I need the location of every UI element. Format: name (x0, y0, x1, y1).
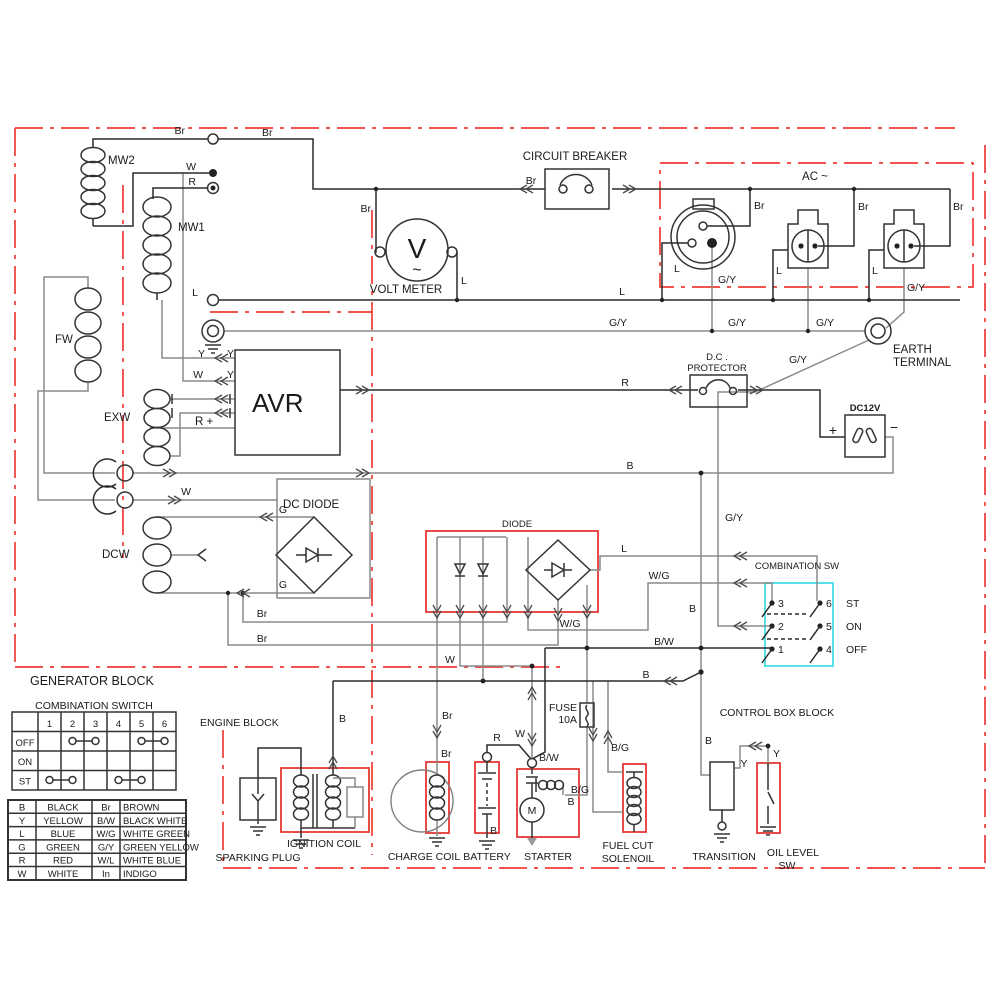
dc-diode (276, 479, 370, 598)
diode-bridge-symbol-triangle (552, 563, 564, 577)
dc-diode-bridge (276, 517, 352, 593)
wire-label: W (193, 369, 203, 381)
wire-fw-ring2 (38, 382, 115, 500)
wire-br-voltmeter (375, 189, 376, 252)
fuel-cut-label-2: SOLENOIL (602, 853, 655, 865)
control-box-block-label: CONTROL BOX BLOCK (720, 707, 835, 719)
col-1: 1 (47, 719, 52, 730)
legend-name: BLACK WHITE (123, 816, 187, 827)
wire-label: B (705, 735, 712, 747)
generator-block-label: GENERATOR BLOCK (30, 674, 155, 688)
legend-code: W (18, 869, 27, 880)
fuse-label-2: 10A (558, 714, 577, 726)
ac-outlet-3 (884, 210, 924, 268)
dcw-label: DCW (102, 549, 130, 561)
motor-m-label: M (528, 805, 537, 817)
wire-label: R (621, 377, 629, 389)
junction-dots (226, 187, 871, 749)
earth-terminal (865, 318, 891, 344)
diode-bridge (526, 540, 590, 600)
wire-br-outlet3 (914, 189, 950, 246)
wire-label: Br (441, 748, 452, 760)
legend-code: Br (101, 803, 111, 814)
combination-switch-table: COMBINATION SWITCH 1 2 3 4 5 6 OFF ON ST (12, 700, 176, 790)
charge-ground-icon (429, 838, 445, 846)
wire-label: Br (858, 201, 869, 213)
starter (520, 759, 564, 847)
engine-block-label: ENGINE BLOCK (200, 717, 279, 729)
generator-terminals (202, 134, 224, 353)
wire-r-battery (487, 745, 531, 759)
wire-label: B (689, 603, 696, 615)
wire-label: B/W (654, 636, 674, 648)
col-2: 2 (70, 719, 75, 730)
legend-name: RED (53, 856, 73, 867)
wire-label: B (626, 460, 633, 472)
wire-label: W (186, 161, 196, 173)
legend-code: R (19, 856, 26, 867)
mw1-label: MW1 (178, 222, 205, 234)
wire-gy-outlet3 (886, 268, 904, 328)
legend-code: G/Y (98, 842, 115, 853)
ignition-coil (293, 774, 363, 848)
dc-protector-label-1: D.C . (706, 352, 728, 363)
sw-st-label: ST (846, 598, 860, 610)
diode-highlight-box (426, 531, 598, 612)
mw1-coil (143, 197, 171, 293)
r-plus-label: R + (195, 416, 214, 428)
legend-name: BROWN (123, 803, 160, 814)
legend-name: YELLOW (43, 816, 83, 827)
wire-label: L (619, 286, 625, 298)
contact-5: 5 (826, 621, 832, 633)
wire-w-diode (460, 537, 532, 666)
dc12v-label: DC12V (850, 403, 881, 414)
wire-label: Br (257, 608, 268, 620)
legend-name: GREEN YELLOW (123, 842, 199, 853)
wire-label: G/Y (725, 512, 743, 524)
wire-label: R (188, 176, 196, 188)
dcw-coil (143, 517, 171, 593)
wire-y-transition (734, 746, 768, 768)
col-4: 4 (116, 719, 121, 730)
wire-label: R (493, 732, 501, 744)
dc12v-plus: + (829, 422, 837, 438)
legend-code: B/W (97, 816, 115, 827)
legend-code: W/L (98, 856, 115, 867)
wire-label: G (279, 504, 287, 516)
wire-label: G/Y (609, 317, 627, 329)
oil-level-switch (760, 763, 776, 835)
wire-label: Y (227, 369, 234, 381)
sw-on-label: ON (846, 621, 862, 633)
oil-level-label-1: OIL LEVEL (767, 847, 819, 859)
wire-label: G/Y (718, 274, 736, 286)
battery-label: BATTERY (463, 851, 510, 863)
switch-blades (762, 603, 820, 663)
ignition-coil-label: IGNITION COIL (287, 838, 361, 850)
contact-4: 4 (826, 644, 832, 656)
wire-br-to-breaker (218, 139, 545, 189)
combination-sw-highlight-box (765, 583, 833, 666)
row-st: ST (19, 777, 31, 788)
wire-label: W (515, 728, 525, 740)
frame-ground-icon (205, 345, 221, 353)
volt-meter-wave: ~ (412, 262, 421, 279)
circuit-breaker-label: CIRCUIT BREAKER (523, 151, 628, 163)
wire-label: L (621, 543, 627, 555)
dc-protector-label-2: PROTECTOR (687, 363, 747, 374)
dc-diode-symbol-triangle (306, 548, 318, 562)
wire-label: G/Y (789, 354, 807, 366)
legend-code: Y (19, 816, 26, 827)
wire-label: L (674, 263, 680, 275)
mw2-coil (81, 148, 105, 219)
wire-label: L (776, 265, 782, 277)
wire-b-transition (701, 473, 710, 775)
wire-label: Y (227, 348, 234, 360)
br-terminal (208, 134, 218, 144)
wire-label: G/Y (728, 317, 746, 329)
w-terminal (209, 169, 217, 177)
wire-br-outlet2 (818, 189, 854, 246)
ignition-condenser (347, 787, 363, 817)
wire-label: Br (262, 127, 273, 139)
wire-spark-plug (258, 748, 301, 778)
legend-name: WHITE (48, 869, 79, 880)
combination-sw-label: COMBINATION SW (755, 561, 839, 572)
legend-name: BLUE (51, 829, 76, 840)
wire-label: Br (257, 633, 268, 645)
wire-label: Br (953, 201, 964, 213)
wire-bg-2 (608, 681, 623, 772)
wire-labels: Br Br Br Br Br Br Br W R L L L L L L G/Y… (175, 125, 965, 837)
wire-label: W/G (649, 570, 670, 582)
component-labels: MW2 MW1 FW EXW DCW AVR CIRCUIT BREAKER V… (30, 151, 952, 872)
wire-label: B (490, 825, 497, 837)
wire-br-mw2 (93, 139, 208, 147)
legend-name: BLACK (47, 803, 79, 814)
wire-label: L (192, 287, 198, 299)
col-3: 3 (93, 719, 98, 730)
dc12v-socket (845, 415, 885, 457)
wire-label: Br (442, 710, 453, 722)
wire-label: B (642, 669, 649, 681)
wire-label: L (872, 265, 878, 277)
wire-label: W (181, 486, 191, 498)
ac-outlet-2 (788, 210, 828, 268)
starter-ground-arrow (527, 838, 537, 846)
color-legend-table: B BLACK Br BROWN Y YELLOW B/W BLACK WHIT… (8, 800, 199, 880)
fuel-cut-solenoid (626, 772, 643, 832)
exw-label: EXW (104, 412, 130, 424)
wire-br2 (228, 593, 558, 645)
mw2-label: MW2 (108, 155, 135, 167)
charge-coil (391, 770, 453, 846)
volt-meter-v: V (408, 233, 427, 264)
ac-label: AC ~ (802, 171, 828, 183)
wire-label: B (567, 796, 574, 808)
fw-label: FW (55, 334, 73, 346)
legend-code: B (19, 803, 25, 814)
fuse-label-1: FUSE (549, 702, 577, 714)
dc-diode-symbol-lines (296, 548, 332, 562)
sparking-plug-label: SPARKING PLUG (216, 852, 301, 864)
wire-label: Y (740, 758, 747, 770)
l-terminal (208, 295, 219, 306)
wire-label: L (461, 275, 467, 287)
legend-name: GREEN (46, 842, 80, 853)
fw-coil (75, 288, 101, 382)
wire-label: B/G (611, 742, 629, 754)
ac-outlet-1 (671, 199, 735, 269)
fuel-cut-label-1: FUEL CUT (603, 840, 655, 852)
wire-label: W (445, 654, 455, 666)
oil-level-label-2: SW (779, 860, 796, 872)
wire-label: Br (361, 203, 372, 215)
legend-code: L (19, 829, 24, 840)
switch-table-title: COMBINATION SWITCH (35, 700, 153, 712)
dcw-tap-contact (198, 549, 206, 561)
block-borders (15, 128, 985, 868)
contact-3: 3 (778, 598, 784, 610)
generator-wiring-diagram: MW2 MW1 FW EXW DCW AVR CIRCUIT BREAKER V… (0, 0, 994, 994)
sparking-plug (240, 778, 276, 835)
dc-diode-box (277, 479, 370, 598)
wire-label: Br (175, 125, 186, 137)
dc12v-minus: − (890, 419, 898, 435)
volt-meter-label: VOLT METER (370, 284, 442, 296)
starter-label: STARTER (524, 851, 572, 863)
diode-block (455, 540, 590, 600)
wire-label: B/G (571, 784, 589, 796)
wire-label: B (339, 713, 346, 725)
row-on: ON (18, 757, 32, 768)
contact-6: 6 (826, 598, 832, 610)
frame-earth-outer (202, 320, 224, 342)
wire-label: Y (198, 348, 205, 360)
slip-rings (93, 459, 133, 514)
combination-switch (762, 600, 823, 663)
legend-name: WHITE BLUE (123, 856, 181, 867)
row-off: OFF (16, 738, 35, 749)
dc-diode-label: DC DIODE (283, 499, 340, 511)
charge-coil-label: CHARGE COIL (388, 851, 461, 863)
transition-ground-icon (714, 834, 730, 842)
wire-label: Y (773, 748, 780, 760)
wire-label: Br (526, 175, 537, 187)
wire-label: B/W (539, 752, 559, 764)
fuse (580, 703, 594, 727)
wire-label: G (279, 579, 287, 591)
contact-1: 1 (778, 644, 784, 656)
frame-earth-inner (208, 326, 219, 337)
diode-label: DIODE (502, 519, 532, 530)
wire-label: G/Y (816, 317, 834, 329)
transition (710, 762, 734, 842)
diode-bridge-symbol-lines (544, 563, 572, 577)
earth-label-2: TERMINAL (893, 357, 952, 369)
circuit-breaker (545, 169, 609, 209)
r-terminal-inner (211, 186, 216, 191)
battery-ground-icon (479, 841, 495, 849)
contact-numbers: 3 2 1 6 5 4 (778, 598, 832, 656)
col-6: 6 (162, 719, 167, 730)
wiring-diagram-page: MW2 MW1 FW EXW DCW AVR CIRCUIT BREAKER V… (0, 0, 994, 994)
wires-gray (38, 173, 904, 836)
highlight-boxes (281, 531, 833, 837)
legend-code: W/G (97, 829, 116, 840)
earth-label-1: EARTH (893, 344, 932, 356)
sw-off-label: OFF (846, 644, 867, 656)
legend-name: INDIGO (123, 869, 157, 880)
legend-name: WHITE GREEN (123, 829, 190, 840)
wire-label: Br (754, 200, 765, 212)
avr-label: AVR (252, 388, 304, 418)
legend-code: G (18, 842, 25, 853)
contact-2: 2 (778, 621, 784, 633)
col-5: 5 (139, 719, 144, 730)
wire-label: W/G (560, 618, 581, 630)
transition-label: TRANSITION (692, 851, 756, 863)
wire-label: G/Y (907, 282, 925, 294)
legend-code: In (102, 869, 110, 880)
